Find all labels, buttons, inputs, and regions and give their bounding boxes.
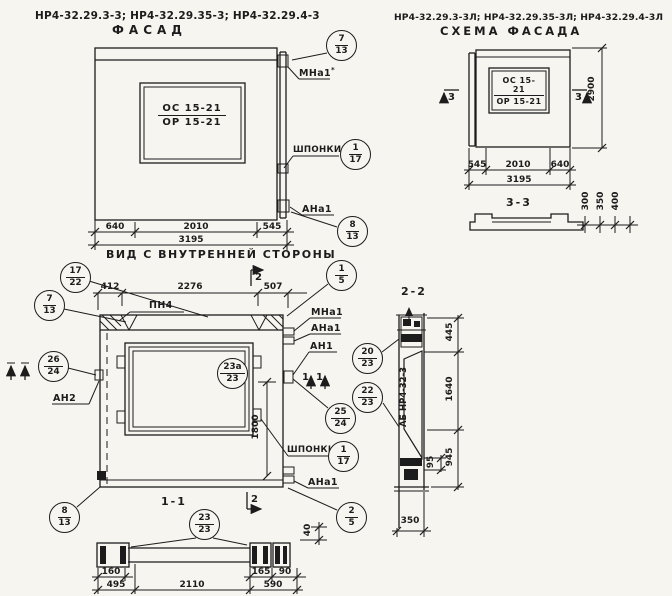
callout-8-13-inner: 813 (49, 502, 80, 533)
dim-3195: 3195 (171, 235, 211, 245)
dim-scheme-640: 640 (540, 160, 580, 170)
scheme-linework (444, 44, 638, 233)
dim-350: 350 (596, 179, 606, 223)
callout-1-17-inner: 117 (328, 441, 359, 472)
label-mna1-inner: МНа1 (311, 307, 343, 318)
callout-22-23: 2223 (352, 382, 383, 413)
callout-17-22: 1722 (60, 262, 91, 293)
dim-507: 507 (253, 282, 293, 292)
title-left-models: НР4-32.29.3-3; НР4-32.29.35-3; НР4-32.29… (35, 10, 320, 22)
dim-2110: 2110 (172, 580, 212, 590)
dim-90: 90 (265, 567, 305, 577)
dim-1800: 1800 (251, 405, 261, 449)
section-mark-1-right: 1 (316, 372, 323, 383)
title-scheme: СХЕМА ФАСАДА (440, 24, 582, 38)
callout-23a-23: 23а23 (217, 358, 248, 389)
dim-scheme-3195: 3195 (499, 175, 539, 185)
callout-7-13-facade: 713 (326, 30, 357, 61)
dim-1640: 1640 (445, 367, 455, 411)
title-inner-view: ВИД С ВНУТРЕННЕЙ СТОРОНЫ (106, 248, 336, 261)
dim-545: 545 (252, 222, 292, 232)
section-mark-3-right: 3 (575, 92, 582, 103)
window-mark-bottom: ОР 15-21 (158, 116, 226, 128)
section-mark-1-left: 1 (302, 372, 309, 383)
callout-8-13-facade: 813 (337, 216, 368, 247)
section-mark-2-bottom: 2 (251, 494, 258, 505)
callout-25-24: 2524 (325, 403, 356, 434)
callout-1-17-facade: 117 (340, 139, 371, 170)
title-facade: ФАСАД (112, 23, 187, 37)
dim-400: 400 (611, 179, 621, 223)
label-pn4: ПН4 (149, 300, 173, 311)
title-section-3-3: 3-3 (506, 196, 532, 209)
label-an1: АН1 (310, 341, 333, 352)
dim-445: 445 (445, 310, 455, 354)
callout-23-23: 2323 (189, 509, 220, 540)
title-section-1-1: 1-1 (161, 495, 187, 508)
linework-svg (0, 0, 672, 596)
dim-95: 95 (426, 440, 436, 484)
label-shponki-facade: ШПОНКИ (293, 145, 341, 155)
dim-300: 300 (581, 179, 591, 223)
footnote-mark: * (331, 66, 335, 74)
window-mark-scheme: ОС 15-21 ОР 15-21 (494, 76, 544, 106)
label-stamp: АБ НР4-32-3 (399, 362, 409, 432)
dim-2900: 2900 (587, 67, 597, 111)
label-ana1-inner-bottom: АНа1 (308, 477, 338, 488)
window-mark-bottom: ОР 15-21 (494, 96, 544, 106)
dim-scheme-545: 545 (457, 160, 497, 170)
dim-scheme-2010: 2010 (498, 160, 538, 170)
dim-640: 640 (95, 222, 135, 232)
window-mark-facade: ОС 15-21 ОР 15-21 (158, 103, 226, 128)
dim-350-bottom: 350 (390, 516, 430, 526)
window-mark-top: ОС 15-21 (494, 76, 544, 96)
label-ana1-facade: АНа1 (302, 204, 332, 215)
callout-7-13-inner: 713 (34, 290, 65, 321)
dim-495: 495 (96, 580, 136, 590)
callout-26-24: 2624 (38, 351, 69, 382)
label-an2: АН2 (53, 393, 76, 404)
callout-2-5: 25 (336, 502, 367, 533)
dim-945: 945 (445, 435, 455, 479)
dim-2010: 2010 (176, 222, 216, 232)
label-ana1-inner-top: АНа1 (311, 323, 341, 334)
dim-412: 412 (90, 282, 130, 292)
dim-40: 40 (303, 508, 313, 552)
drawing-sheet: НР4-32.29.3-3; НР4-32.29.35-3; НР4-32.29… (0, 0, 672, 596)
callout-1-5: 15 (326, 260, 357, 291)
dim-160: 160 (91, 567, 131, 577)
dim-590: 590 (253, 580, 293, 590)
section-mark-3-left: 3 (448, 92, 455, 103)
window-mark-top: ОС 15-21 (158, 103, 225, 116)
callout-20-23: 2023 (352, 343, 383, 374)
dim-2276: 2276 (170, 282, 210, 292)
title-section-2-2: 2-2 (401, 285, 427, 298)
title-right-models: НР4-32.29.3-3Л; НР4-32.29.35-3Л; НР4-32.… (394, 12, 663, 23)
label-mna1-note: МНа1* (299, 66, 335, 79)
